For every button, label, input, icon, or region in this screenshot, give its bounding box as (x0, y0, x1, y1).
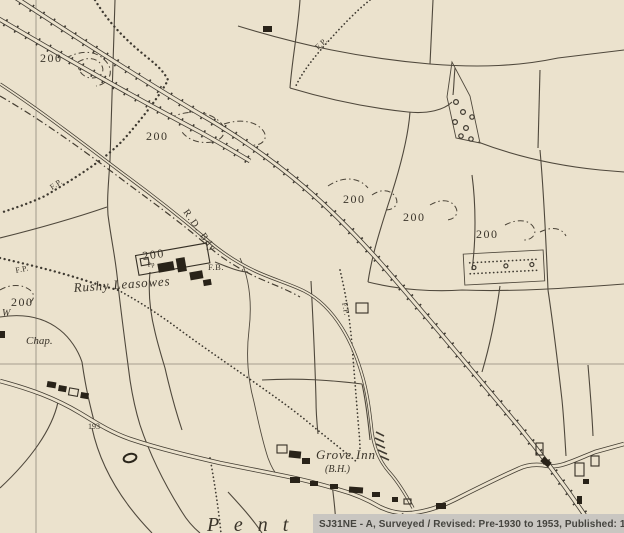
contour-label: 200 (11, 295, 34, 309)
chapel-label: Chap. (26, 335, 53, 347)
map-viewport[interactable]: 200 200 200 200 200 200 200 F.P. F.P. F.… (0, 0, 624, 533)
contour-label: 200 (146, 129, 169, 143)
os-map-canvas: 200 200 200 200 200 200 200 F.P. F.P. F.… (0, 0, 624, 533)
pump-label: Pp (147, 261, 155, 269)
spot-height-label: 193 (88, 422, 100, 431)
place-name-label: P e n t (206, 514, 293, 533)
contour-label: 200 (40, 51, 63, 65)
caption: SJ31NE - A, Surveyed / Revised: Pre-1930… (313, 514, 624, 533)
contour-label: 200 (476, 227, 499, 241)
inn-name-label: Grove Inn (316, 447, 376, 462)
inn-type-label: (B.H.) (325, 464, 351, 475)
contour-label: 200 (403, 210, 426, 224)
contour-label: 200 (343, 192, 366, 206)
caption-text: SJ31NE - A, Surveyed / Revised: Pre-1930… (319, 519, 624, 530)
footbridge-label: F.B. (208, 262, 224, 272)
